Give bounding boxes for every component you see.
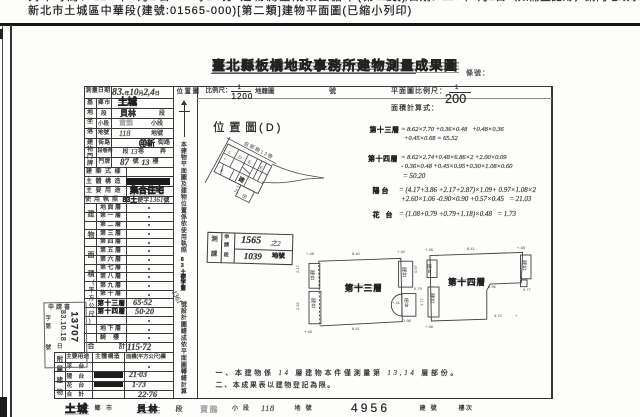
svg-text:+.48: +.48 bbox=[425, 324, 434, 329]
svg-text:陽台: 陽台 bbox=[429, 292, 435, 304]
svg-text:D: D bbox=[237, 154, 243, 160]
svg-text:+.48: +.48 bbox=[304, 329, 313, 334]
svg-text:第十三層: 第十三層 bbox=[345, 283, 383, 293]
svg-text:陽台: 陽台 bbox=[521, 259, 527, 271]
svg-text:+.48: +.48 bbox=[425, 247, 434, 252]
svg-text:田: 田 bbox=[241, 193, 248, 201]
svg-text:陽台: 陽台 bbox=[404, 297, 410, 309]
svg-text:+.48: +.48 bbox=[306, 251, 315, 256]
svg-text:第十四層: 第十四層 bbox=[448, 277, 486, 287]
svg-text:4.74: 4.74 bbox=[494, 313, 503, 318]
svg-text:b: b bbox=[219, 168, 224, 174]
svg-text:陽台: 陽台 bbox=[309, 269, 315, 281]
svg-text:E: E bbox=[247, 159, 252, 165]
svg-text:8.40: 8.40 bbox=[352, 251, 361, 256]
svg-text:8.41: 8.41 bbox=[352, 326, 361, 331]
svg-text:0.79: 0.79 bbox=[414, 286, 423, 291]
svg-text:1.77: 1.77 bbox=[419, 297, 424, 306]
svg-text:+.48: +.48 bbox=[517, 245, 526, 250]
svg-text:八: 八 bbox=[233, 188, 240, 196]
svg-text:2.52: 2.52 bbox=[295, 301, 300, 310]
svg-text:陽台: 陽台 bbox=[310, 297, 316, 309]
svg-text:陽台: 陽台 bbox=[401, 266, 407, 278]
svg-text:陽台: 陽台 bbox=[427, 263, 433, 275]
svg-text:自郭樹13巷: 自郭樹13巷 bbox=[243, 140, 275, 161]
svg-text:1.98: 1.98 bbox=[403, 318, 412, 323]
svg-text:0.77: 0.77 bbox=[523, 287, 532, 292]
svg-text:2.17: 2.17 bbox=[295, 264, 300, 273]
svg-text:8.41: 8.41 bbox=[467, 246, 476, 251]
svg-text:c: c bbox=[228, 149, 233, 155]
svg-text:0.96: 0.96 bbox=[488, 284, 497, 289]
svg-text:+: + bbox=[515, 313, 518, 318]
svg-text:*: * bbox=[223, 157, 227, 162]
svg-text:+.41: +.41 bbox=[392, 300, 401, 305]
svg-text:0.97: 0.97 bbox=[413, 264, 418, 273]
svg-text:+.40: +.40 bbox=[397, 249, 406, 254]
